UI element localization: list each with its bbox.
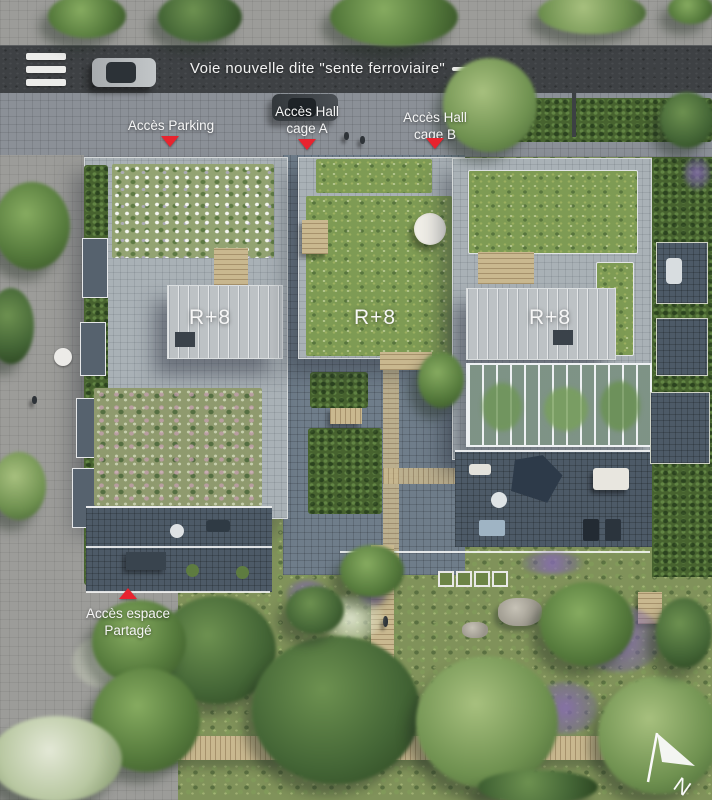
terrace-plant [236, 566, 249, 579]
site-plan-canvas: Voie nouvelle dite "sente ferroviaire" [0, 0, 712, 800]
floors-label-right-building: R+8 [529, 306, 571, 330]
marker-label-espace[interactable]: Accès espace Partagé [86, 606, 170, 640]
pergola-greenhouse [466, 363, 652, 447]
picnic-table [330, 408, 362, 424]
crosswalk-stripe [26, 79, 66, 86]
pedestrian [360, 136, 365, 144]
crosswalk-stripe [26, 53, 66, 60]
roof-hatch [553, 330, 573, 345]
marker-label-parking[interactable]: Accès Parking [128, 118, 214, 135]
lounge-chair [469, 464, 491, 475]
mat [479, 520, 505, 536]
lounger [583, 519, 599, 541]
tree [416, 656, 558, 788]
roof-deck [478, 252, 534, 284]
floors-label-left-building: R+8 [189, 306, 231, 330]
building-left-terraces [86, 506, 272, 592]
round-pool [491, 492, 507, 508]
pedestrian [32, 396, 37, 404]
terrace-plant [186, 564, 199, 577]
canopy-tent [505, 447, 566, 504]
compass-arrow-head [657, 733, 695, 766]
tree [340, 545, 404, 597]
boulder [498, 598, 542, 626]
crosswalk-stripe [26, 66, 66, 73]
marker-arrow-espace[interactable] [119, 588, 137, 599]
tree-flowering [0, 716, 122, 800]
marker-label-hall-a[interactable]: Accès Hall cage A [275, 104, 339, 138]
terrace-table [126, 552, 166, 570]
terrace-sofa [206, 520, 230, 532]
raised-planter [474, 571, 490, 587]
dining-table [593, 468, 629, 490]
private-car [666, 258, 682, 284]
marker-espace-line1: Accès espace [86, 606, 170, 623]
crosswalk-stripes-icon [26, 53, 66, 88]
raised-planter [456, 571, 472, 587]
long-table [302, 220, 328, 254]
round-table [54, 348, 72, 366]
marker-hall-b-line1: Accès Hall [403, 110, 467, 127]
tree [478, 770, 598, 800]
pergola-plants [600, 381, 640, 431]
car-on-road [92, 58, 156, 87]
fence-left-building [86, 591, 270, 593]
raised-planter [492, 571, 508, 587]
courtyard-hedge [310, 372, 368, 408]
terrace-chair [170, 524, 184, 538]
marker-arrow-hall-b[interactable] [426, 138, 444, 149]
terrace-divider [86, 546, 272, 548]
stone-path-vertical [383, 354, 399, 574]
lounger [605, 519, 621, 541]
stone-path-horizontal [383, 468, 465, 484]
balcony [80, 322, 106, 376]
building-right-garden-roof [468, 170, 638, 254]
pedestrian [344, 132, 349, 140]
private-terrace [650, 392, 710, 464]
building-left-flower-roof [112, 164, 274, 258]
roof-hatch [175, 332, 195, 347]
private-terrace [656, 318, 708, 376]
car-roof [106, 62, 136, 83]
marker-hall-a-line1: Accès Hall [275, 104, 339, 121]
marker-arrow-hall-a[interactable] [298, 139, 316, 150]
marker-espace-line2: Partagé [86, 623, 170, 640]
building-right-lower-terrace [455, 514, 652, 547]
balcony [82, 238, 108, 298]
tree [286, 586, 344, 634]
compass-north-arrow-icon: N [636, 718, 710, 798]
building-middle-lawn [316, 159, 432, 193]
raised-planter [438, 571, 454, 587]
road-name-label: Voie nouvelle dite "sente ferroviaire" [190, 60, 445, 77]
tree [252, 636, 420, 784]
street-lamp [572, 93, 576, 137]
tree [540, 582, 634, 666]
tree [660, 92, 712, 148]
marker-arrow-parking[interactable] [161, 136, 179, 147]
tree [656, 598, 712, 668]
roof-deck [214, 248, 248, 290]
marker-hall-a-line2: cage A [275, 121, 339, 138]
tree [418, 352, 464, 408]
compass-arrow-needle [648, 733, 657, 782]
boulder [462, 622, 488, 638]
pergola-plants [482, 383, 522, 431]
parasol [414, 213, 446, 245]
building-right-terrace [455, 450, 652, 514]
private-terrace [656, 242, 708, 304]
floors-label-middle-building: R+8 [354, 306, 396, 330]
compass-north-label: N [669, 773, 695, 798]
flower-patch-purple [520, 552, 584, 574]
building-left-meadow-roof [94, 388, 262, 506]
marker-parking-text: Accès Parking [128, 118, 214, 133]
pergola-plants [544, 387, 588, 431]
flower-patch-purple [684, 156, 710, 190]
courtyard-garden [308, 428, 382, 514]
